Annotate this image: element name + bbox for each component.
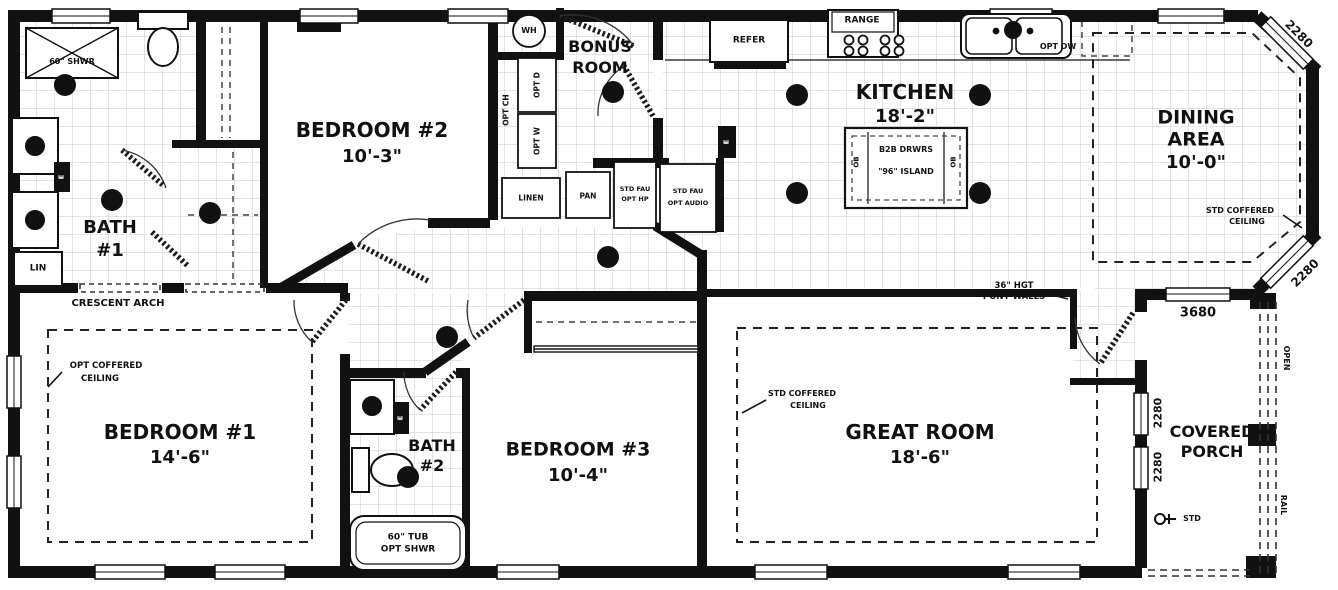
tub-label-1: 60" TUB [388, 534, 429, 543]
bedroom1-name: BEDROOM #1 [104, 422, 256, 442]
floor-plan-drawing [0, 0, 1338, 590]
electrical-panel-label-3: E [398, 416, 405, 421]
dining-dim: 10'-0" [1166, 154, 1226, 172]
bed1-opt-coffered-1: OPT COFFERED [70, 362, 143, 371]
furnace2-line2: OPT AUDIO [668, 200, 708, 207]
great-room-dim: 18'-6" [890, 449, 950, 467]
linen-small-label: LIN [30, 265, 47, 274]
bedroom2-name: BEDROOM #2 [296, 120, 448, 140]
island-end-right: OB [951, 156, 958, 167]
range-label: RANGE [845, 17, 880, 26]
shower-label: 60" SHWR [49, 58, 95, 66]
electrical-panel-label-2: E [724, 140, 731, 145]
hose-bib-label: STD [1183, 515, 1201, 523]
linen-label: LINEN [518, 194, 543, 202]
refrigerator-label: REFER [733, 37, 765, 46]
dining-name-1: DINING [1157, 109, 1234, 128]
dining-std-coffered-2: CEILING [1229, 218, 1265, 226]
crescent-arch-label: CRESCENT ARCH [71, 299, 164, 309]
pony-wall-note-2: PONY WALLS [983, 293, 1045, 302]
bedroom1-dim: 14'-6" [150, 449, 210, 467]
great-room-name: GREAT ROOM [845, 422, 994, 442]
great-std-coffered-1: STD COFFERED [768, 390, 836, 398]
electrical-panel-label-1: E [59, 175, 66, 180]
kitchen-dim: 18'-2" [875, 108, 935, 126]
island-line2: "96" ISLAND [878, 168, 934, 176]
floor-plan: BATH #1 60" SHWR LIN E CRESCENT ARCH BED… [0, 0, 1338, 590]
opt-washer-label: OPT W [533, 127, 541, 155]
kitchen-sink [961, 14, 1071, 58]
great-std-coffered-2: CEILING [790, 402, 826, 410]
bed3-closet-doors [534, 346, 698, 352]
furnace2-line1: STD FAU [673, 188, 704, 195]
pony-wall-note-1: 36" HGT [995, 282, 1034, 291]
furnace1-line2: OPT HP [621, 196, 648, 203]
dining-std-coffered-1: STD COFFERED [1206, 207, 1274, 215]
bonus-name-1: BONUS [568, 39, 632, 55]
bedroom2-dim: 10'-3" [342, 148, 402, 166]
bath1-number: #1 [96, 242, 124, 260]
water-heater-label: WH [521, 27, 537, 35]
opt-chase-label: OPT CH [502, 94, 510, 125]
bath1-label: BATH [83, 219, 137, 237]
bedroom3-name: BEDROOM #3 [506, 441, 651, 460]
hose-bib [1155, 514, 1176, 524]
porch-name-2: PORCH [1181, 444, 1244, 460]
dining-porch-window-dim: 3680 [1180, 307, 1216, 320]
bed1-opt-coffered-2: CEILING [81, 375, 119, 384]
bath2-number: #2 [420, 458, 445, 474]
kitchen-name: KITCHEN [856, 82, 954, 102]
pantry-label: PAN [580, 192, 597, 200]
open-label: OPEN [1282, 346, 1290, 371]
porch-window2-dim: 2280 [1153, 452, 1164, 483]
island-line1: B2B DRWRS [879, 146, 933, 154]
dining-name-2: AREA [1167, 131, 1224, 150]
furnace1-line1: STD FAU [620, 186, 651, 193]
opt-dryer-label: OPT D [533, 72, 541, 98]
porch-name-1: COVERED [1170, 424, 1255, 440]
opt-dishwasher-label: OPT DW [1040, 43, 1076, 51]
porch-window1-dim: 2280 [1153, 398, 1164, 429]
rail-label: RAIL [1279, 495, 1287, 515]
tub-label-2: OPT SHWR [381, 546, 435, 555]
bedroom3-dim: 10'-4" [548, 467, 608, 485]
bonus-name-2: ROOM [572, 60, 627, 76]
bath2-label: BATH [408, 438, 456, 454]
island-end-left: OB [854, 156, 861, 167]
